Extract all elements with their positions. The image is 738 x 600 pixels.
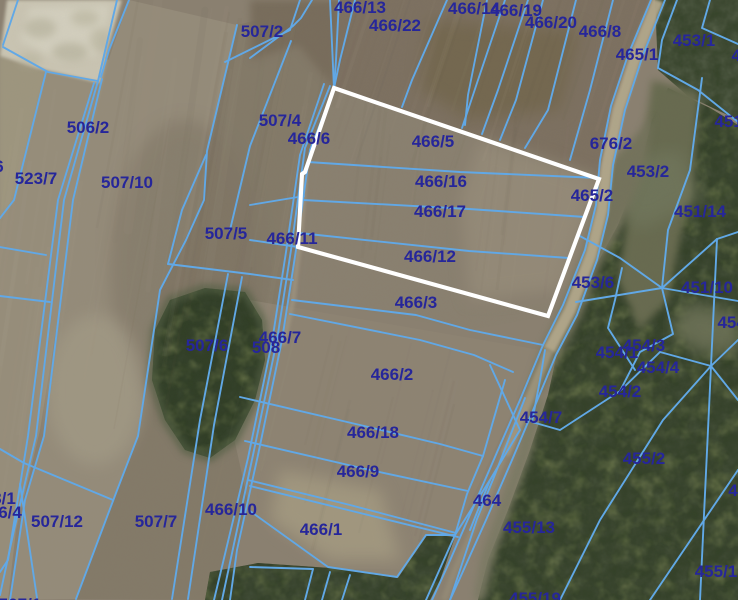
svg-text:466/17: 466/17	[414, 202, 466, 221]
svg-text:466/9: 466/9	[337, 462, 380, 481]
svg-text:451/: 451/	[714, 112, 738, 131]
svg-text:454/2: 454/2	[599, 382, 642, 401]
svg-text:451/10: 451/10	[681, 278, 733, 297]
svg-text:466/6: 466/6	[288, 129, 331, 148]
svg-text:466/11: 466/11	[266, 229, 317, 248]
svg-text:6: 6	[0, 157, 4, 176]
svg-text:466/12: 466/12	[404, 247, 456, 266]
svg-text:466/8: 466/8	[579, 22, 622, 41]
svg-text:466/18: 466/18	[347, 423, 399, 442]
svg-text:4: 4	[728, 481, 738, 500]
svg-text:451/14: 451/14	[674, 202, 727, 221]
svg-text:454/4: 454/4	[637, 358, 680, 377]
svg-text:507/2: 507/2	[241, 22, 284, 41]
svg-text:507/12: 507/12	[31, 512, 83, 531]
svg-text:507/4: 507/4	[259, 111, 302, 130]
svg-text:466/7: 466/7	[259, 328, 302, 347]
svg-text:466/10: 466/10	[205, 500, 257, 519]
svg-text:454/3: 454/3	[623, 336, 666, 355]
svg-text:507/10: 507/10	[101, 173, 153, 192]
svg-text:455/2: 455/2	[623, 449, 666, 468]
svg-text:523/7: 523/7	[15, 169, 58, 188]
svg-text:464: 464	[473, 491, 502, 510]
svg-text:455/19: 455/19	[509, 589, 561, 600]
svg-text:676/2: 676/2	[590, 134, 633, 153]
svg-text:454/7: 454/7	[520, 408, 563, 427]
svg-text:466/13: 466/13	[334, 0, 386, 17]
svg-text:453/1: 453/1	[673, 31, 716, 50]
svg-text:507/1: 507/1	[0, 595, 41, 600]
svg-text:45: 45	[732, 46, 738, 65]
svg-text:453/6: 453/6	[572, 273, 615, 292]
svg-text:507/6: 507/6	[186, 336, 229, 355]
svg-text:466/3: 466/3	[395, 293, 438, 312]
svg-text:455/13: 455/13	[503, 518, 555, 537]
svg-text:466/1: 466/1	[300, 520, 343, 539]
svg-text:507/5: 507/5	[205, 224, 248, 243]
svg-text:465/1: 465/1	[616, 45, 659, 64]
svg-text:453/2: 453/2	[627, 162, 670, 181]
svg-text:455/1: 455/1	[695, 562, 738, 581]
svg-text:507/7: 507/7	[135, 512, 178, 531]
svg-text:466/2: 466/2	[371, 365, 414, 384]
svg-text:466/16: 466/16	[415, 172, 467, 191]
svg-text:454/: 454/	[717, 313, 738, 332]
svg-text:466/5: 466/5	[412, 132, 455, 151]
svg-text:466/22: 466/22	[369, 16, 421, 35]
svg-text:466/20: 466/20	[525, 13, 577, 32]
svg-text:6/4: 6/4	[0, 503, 22, 522]
svg-text:465/2: 465/2	[571, 186, 614, 205]
svg-text:506/2: 506/2	[67, 118, 110, 137]
